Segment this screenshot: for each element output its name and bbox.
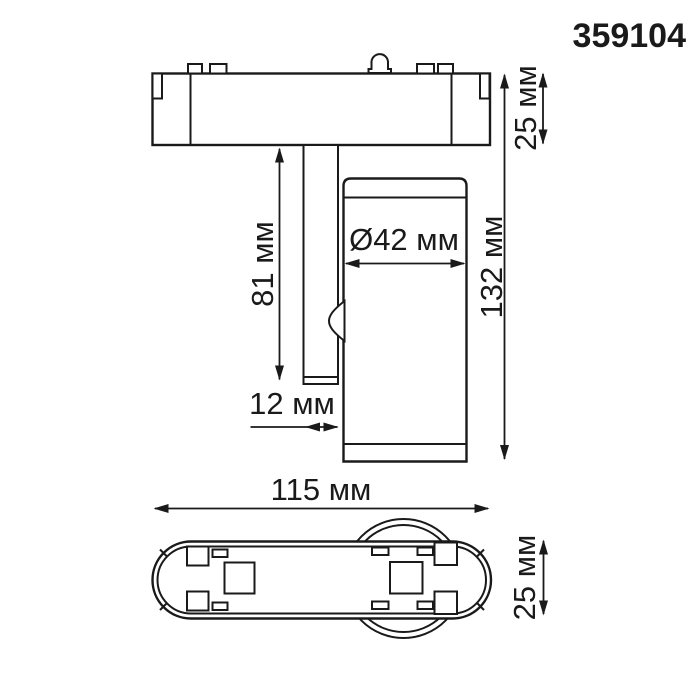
dim-base-length-label: 115 мм (271, 472, 372, 507)
dim-stem-length-label: 81 мм (245, 221, 280, 307)
dim-head-diameter-label: Ø42 мм (349, 222, 459, 257)
dim-base-width: 25 мм (507, 535, 548, 621)
track-notch-left (153, 74, 163, 99)
mount-pad (187, 592, 209, 611)
mount-tab (438, 64, 453, 74)
mount-pad (187, 547, 209, 566)
track-body-outline (153, 74, 491, 146)
dim-track-height-label: 25 мм (508, 65, 543, 151)
magnet-pad (225, 563, 255, 594)
dim-overall-height-label: 132 мм (474, 216, 509, 319)
contact-slot (213, 603, 228, 611)
contact-slot (372, 602, 389, 610)
stem-outline (304, 145, 339, 384)
dim-base-width-label: 25 мм (507, 535, 542, 621)
lamp-head-outline (344, 179, 467, 462)
track-notch-right (480, 74, 490, 99)
contact-slot (372, 548, 389, 556)
contact-slot (418, 548, 434, 556)
contact-slot (418, 602, 434, 610)
magnet-pad (390, 562, 423, 594)
mount-tab (210, 64, 227, 74)
mount-tab (417, 64, 434, 74)
track-base-bottom (153, 542, 492, 619)
technical-drawing: 359104 (0, 0, 700, 700)
contact-slot (213, 550, 228, 558)
dim-stem-width-label: 12 мм (249, 386, 335, 421)
mount-pad (435, 592, 458, 615)
mount-tab (188, 64, 202, 74)
product-code: 359104 (573, 17, 687, 55)
dim-track-height: 25 мм (508, 65, 548, 151)
mount-pad (435, 543, 458, 566)
stem (304, 145, 339, 384)
lamp-head (329, 179, 467, 462)
